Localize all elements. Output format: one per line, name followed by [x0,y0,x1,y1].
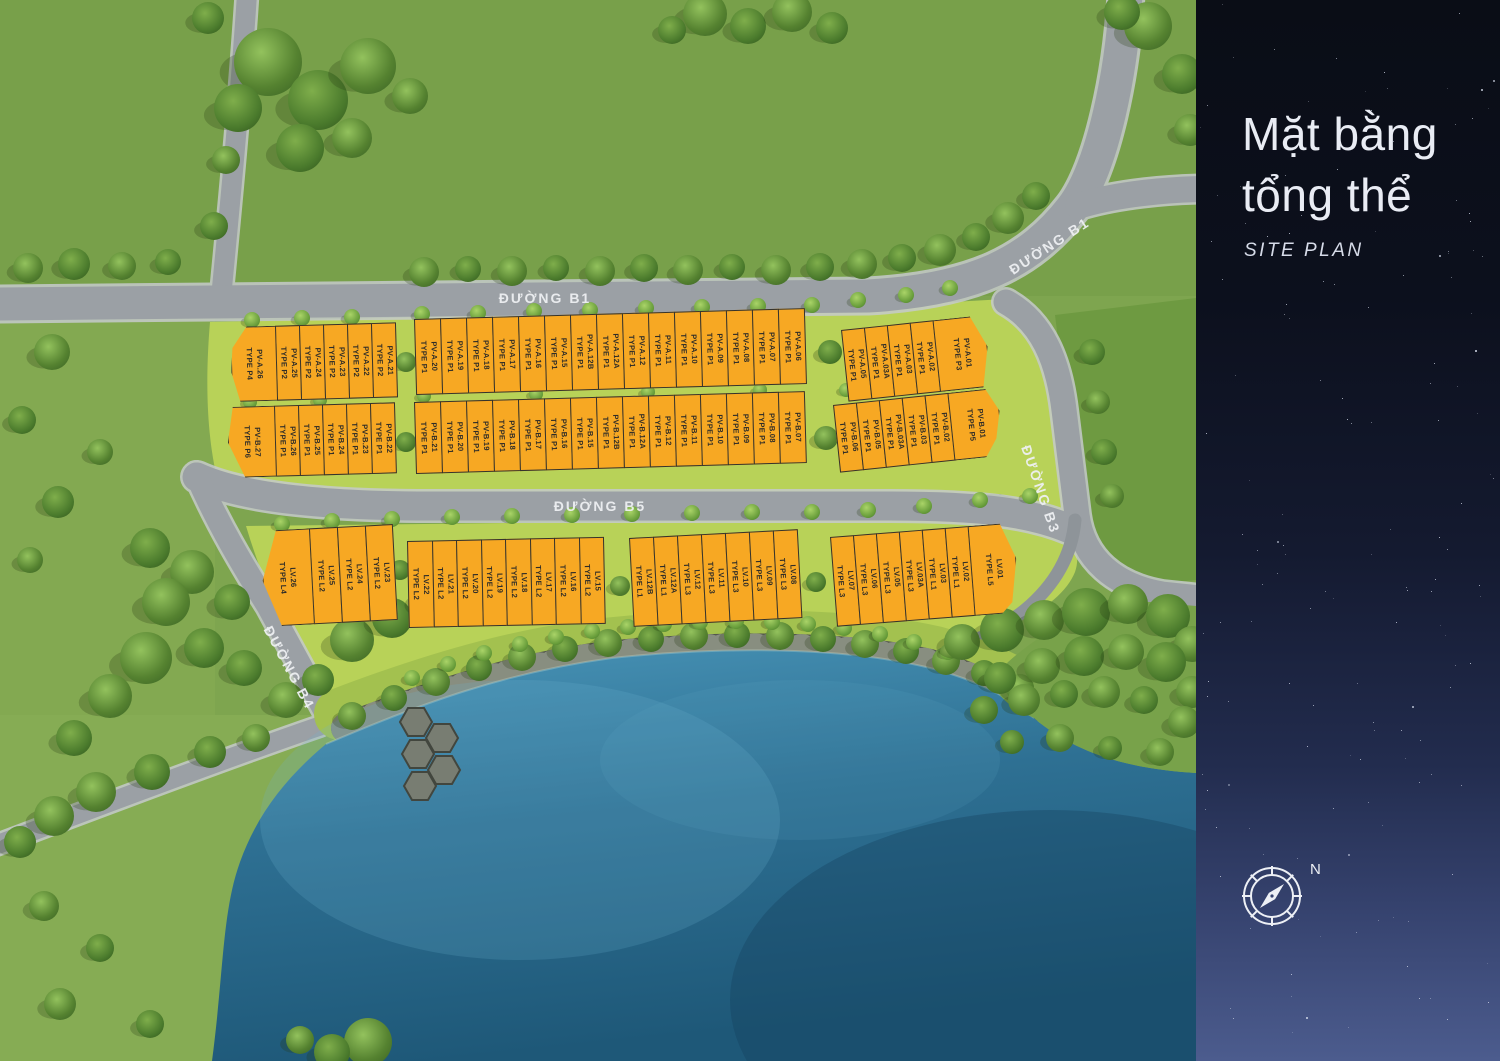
lot-PV-B.23[interactable]: PV-B.23TYPE P1 [346,403,373,475]
star-dot [1477,413,1478,414]
lot-PV-B.22[interactable]: PV-B.22TYPE P1 [370,402,397,474]
lot-label: PV-B.12BTYPE P1 [600,415,621,451]
star-dot [1412,706,1414,708]
star-dot [1334,284,1335,285]
star-dot [1439,537,1440,538]
star-dot [1420,740,1421,741]
star-dot [1408,921,1409,922]
lot-label: PV-B.05TYPE P1 [859,418,883,453]
star-dot [1249,828,1250,829]
star-dot [1291,974,1292,975]
star-dot [1262,584,1263,585]
star-dot [1228,784,1230,786]
star-dot [1419,998,1420,999]
star-dot [1205,809,1206,810]
star-dot [1481,89,1483,91]
star-dot [1202,774,1203,775]
star-dot [1480,596,1481,597]
star-dot [1450,687,1451,688]
lot-label: PV-B.15TYPE P1 [574,417,595,450]
star-dot [1220,876,1221,877]
lot-label: PV-A.21TYPE P2 [374,344,395,377]
lot-label: PV-A.24TYPE P2 [302,346,323,379]
star-dot [1405,758,1406,759]
lot-LV.16[interactable]: LV.16TYPE L2 [554,537,581,625]
star-dot [1207,696,1208,697]
lot-LV.22[interactable]: LV.22TYPE L2 [407,540,434,628]
star-dot [1493,80,1495,82]
star-dot [1257,550,1258,551]
star-dot [1448,253,1449,254]
lot-label: PV-B.11TYPE P1 [678,414,699,447]
lot-PV-B.12[interactable]: PV-B.12TYPE P1 [648,395,677,468]
lot-PV-A.25[interactable]: PV-A.25TYPE P2 [275,325,302,401]
star-dot [1200,127,1201,128]
star-dot [1431,591,1432,592]
star-dot [1475,350,1477,352]
lot-PV-A.23[interactable]: PV-A.23TYPE P2 [323,324,350,400]
star-dot [1325,591,1326,592]
star-dot [1401,730,1402,731]
lot-label: PV-A.25TYPE P2 [278,346,299,379]
star-dot [1451,277,1452,278]
star-dot [1208,681,1209,682]
star-dot [1220,622,1221,623]
lot-PV-B.12A[interactable]: PV-B.12ATYPE P1 [622,395,651,468]
lot-label: PV-A.06TYPE P1 [782,330,803,363]
star-dot [1479,585,1480,586]
star-dot [1368,802,1369,803]
lots-layer: PV-A.26TYPE P4PV-A.25TYPE P2PV-A.24TYPE … [0,0,1196,1061]
star-dot [1382,825,1383,826]
lot-PV-B.11[interactable]: PV-B.11TYPE P1 [674,394,703,467]
star-dot [1242,534,1243,535]
star-dot [1455,124,1456,125]
star-dot [1348,1027,1349,1028]
lot-PV-B.20[interactable]: PV-B.20TYPE P1 [440,401,469,474]
lot-PV-A.12B[interactable]: PV-A.12BTYPE P1 [570,314,599,391]
star-dot [1257,564,1258,565]
lot-label: LV.11TYPE L3 [705,561,727,594]
lot-group-pv-a-3: PV-A.05TYPE P1PV-A.03ATYPE P1PV-A.03TYPE… [841,315,992,402]
lot-label: LV.25TYPE L2 [315,559,337,592]
star-dot [1222,4,1223,5]
star-dot [1435,579,1436,580]
lot-label: LV.17TYPE L2 [533,565,554,598]
star-dot [1447,88,1448,89]
star-dot [1439,255,1441,257]
lot-LV.20[interactable]: LV.20TYPE L2 [456,539,483,627]
star-dot [1307,746,1308,747]
star-dot [1283,545,1284,546]
lot-PV-A.10[interactable]: PV-A.10TYPE P1 [674,311,703,388]
lot-label: LV.23TYPE L2 [370,556,392,589]
lot-PV-B.26[interactable]: PV-B.26TYPE P1 [274,405,301,477]
lot-label: PV-B.16TYPE P1 [548,417,569,450]
star-dot [1469,213,1470,214]
lot-label: PV-B.22TYPE P1 [373,422,394,455]
lot-label: LV.01TYPE L5 [983,552,1006,586]
lot-label: PV-A.16TYPE P1 [522,337,543,370]
lot-LV.21[interactable]: LV.21TYPE L2 [431,540,458,628]
star-dot [1357,683,1358,684]
star-dot [1387,88,1388,89]
lot-PV-B.17[interactable]: PV-B.17TYPE P1 [518,398,547,471]
lot-label: LV.08TYPE L3 [777,558,799,591]
lot-label: PV-A.07TYPE P1 [756,331,777,364]
lot-label: LV.02TYPE L1 [949,555,972,589]
lot-label: PV-A.12BTYPE P1 [574,334,595,370]
star-dot [1284,314,1285,315]
sidebar: Mặt bằng tổng thể SITE PLAN N [1196,0,1500,1061]
compass-icon: N [1224,842,1340,946]
lot-PV-B.10[interactable]: PV-B.10TYPE P1 [700,393,729,466]
lot-PV-A.12[interactable]: PV-A.12TYPE P1 [622,312,651,389]
lot-label: LV.07TYPE L3 [834,564,857,598]
star-dot [1323,281,1324,282]
star-dot [1360,759,1361,760]
lot-label: PV-B.23TYPE P1 [349,422,370,455]
star-dot [1457,386,1458,387]
lot-PV-B.12B[interactable]: PV-B.12BTYPE P1 [596,396,625,469]
lot-label: LV.20TYPE L2 [459,567,480,600]
lot-PV-A.12A[interactable]: PV-A.12ATYPE P1 [596,313,625,390]
star-dot [1289,233,1290,234]
lot-label: PV-A.15TYPE P1 [548,336,569,369]
star-dot [1274,49,1275,50]
lot-PV-A.24[interactable]: PV-A.24TYPE P2 [299,324,326,400]
lot-PV-A.11[interactable]: PV-A.11TYPE P1 [648,312,677,389]
lot-label: PV-B.21TYPE P1 [418,421,439,454]
lot-label: PV-A.18TYPE P1 [470,339,491,372]
lot-PV-B.25[interactable]: PV-B.25TYPE P1 [298,404,325,476]
star-dot [1459,13,1460,14]
lot-LV.23[interactable]: LV.23TYPE L2 [365,524,398,621]
star-dot [1438,420,1439,421]
lot-PV-B.15[interactable]: PV-B.15TYPE P1 [570,397,599,470]
star-dot [1452,874,1453,875]
lot-label: PV-A.12ATYPE P1 [600,334,621,370]
star-dot [1431,774,1432,775]
star-dot [1216,827,1217,828]
lot-label: PV-B.09TYPE P1 [730,412,751,445]
lot-label: LV.26TYPE L4 [276,561,298,594]
lot-label: PV-B.06TYPE P1 [837,420,861,455]
compass-north-label: N [1310,861,1321,878]
star-dot [1396,622,1397,623]
lot-PV-B.16[interactable]: PV-B.16TYPE P1 [544,398,573,471]
lot-LV.01[interactable]: LV.01TYPE L5 [968,523,1021,616]
star-dot [1351,423,1352,424]
star-dot [1406,587,1407,588]
star-dot [1308,101,1309,102]
star-dot [1368,307,1369,308]
star-dot [1267,236,1268,237]
lot-label: PV-A.11TYPE P1 [652,333,673,366]
star-dot [1471,313,1472,314]
star-dot [1350,755,1351,756]
star-dot [1333,808,1334,809]
star-dot [1348,854,1350,856]
star-dot [1407,590,1408,591]
page-title-line1: Mặt bằng [1242,104,1438,165]
star-dot [1445,635,1446,636]
star-dot [1230,1008,1231,1009]
lot-label: PV-B.10TYPE P1 [704,413,725,446]
lot-label: PV-A.01TYPE P3 [950,336,974,371]
star-dot [1277,573,1278,574]
star-dot [1430,383,1431,384]
star-dot [1310,608,1311,609]
star-dot [1356,932,1357,933]
star-dot [1291,996,1292,997]
star-dot [1448,251,1449,252]
lot-PV-A.18[interactable]: PV-A.18TYPE P1 [466,317,495,394]
lot-label: LV.19TYPE L2 [484,566,505,599]
lot-label: PV-B.02TYPE P1 [928,411,952,446]
lot-group-pv-b-1: PV-B.27TYPE P6PV-B.26TYPE P1PV-B.25TYPE … [227,402,397,478]
star-dot [1289,318,1290,319]
star-dot [1384,72,1385,73]
lot-PV-B.24[interactable]: PV-B.24TYPE P1 [322,404,349,476]
star-dot [1456,200,1457,201]
lot-group-lv-2: LV.22TYPE L2LV.21TYPE L2LV.20TYPE L2LV.1… [407,537,606,628]
lot-label: PV-B.17TYPE P1 [522,418,543,451]
star-dot [1313,705,1314,706]
page-subtitle: SITE PLAN [1244,240,1364,262]
lot-label: PV-A.12TYPE P1 [626,334,647,367]
star-dot [1430,998,1431,999]
lot-label: PV-B.01TYPE P5 [964,407,988,442]
lot-label: PV-B.12TYPE P1 [652,414,673,447]
star-dot [1249,480,1250,481]
lot-label: PV-A.03TYPE P1 [891,342,915,377]
lot-PV-B.18[interactable]: PV-B.18TYPE P1 [492,399,521,472]
star-dot [1461,503,1462,504]
lot-label: PV-B.27TYPE P6 [241,425,262,458]
lot-group-pv-a-1: PV-A.26TYPE P4PV-A.25TYPE P2PV-A.24TYPE … [230,322,398,402]
star-dot [1277,541,1279,543]
site-plan-page: ĐƯỜNG B1 ĐƯỜNG B1 ĐƯỜNG B3 ĐƯỜNG B4 ĐƯỜN… [0,0,1500,1061]
lot-label: LV.24TYPE L2 [343,558,365,591]
lot-label: LV.03TYPE L1 [926,557,949,591]
lot-PV-B.01[interactable]: PV-B.01TYPE P5 [947,388,1004,461]
star-dot [1393,917,1394,918]
star-dot [1487,963,1488,964]
star-dot [1461,785,1462,786]
star-dot [1203,633,1204,634]
lot-label: PV-A.10TYPE P1 [678,333,699,366]
lot-label: PV-A.05TYPE P1 [845,347,869,382]
star-dot [1211,241,1212,242]
star-dot [1374,730,1375,731]
lot-label: PV-B.20TYPE P1 [444,420,465,453]
star-dot [1207,105,1208,106]
lot-PV-B.21[interactable]: PV-B.21TYPE P1 [414,401,443,474]
lot-PV-B.09[interactable]: PV-B.09TYPE P1 [726,393,755,466]
star-dot [1447,1019,1448,1020]
lot-label: PV-B.18TYPE P1 [496,419,517,452]
star-dot [1333,598,1334,599]
star-dot [1390,529,1391,530]
lot-LV.26[interactable]: LV.26TYPE L4 [260,528,315,626]
lot-LV.18[interactable]: LV.18TYPE L2 [505,538,532,626]
lot-PV-A.22[interactable]: PV-A.22TYPE P2 [347,323,374,399]
page-title-line2: tổng thể [1242,165,1438,226]
star-dot [1373,722,1374,723]
star-dot [1240,186,1241,187]
star-dot [1470,663,1471,664]
lot-PV-A.06[interactable]: PV-A.06TYPE P1 [778,308,807,385]
star-dot [1488,1002,1489,1003]
lot-PV-A.01[interactable]: PV-A.01TYPE P3 [932,315,991,392]
lot-label: LV.06TYPE L3 [857,562,880,596]
lot-label: LV.15TYPE L2 [582,564,603,597]
star-dot [1371,554,1372,555]
star-dot [1490,474,1491,475]
star-dot [1403,275,1404,276]
star-dot [1286,304,1287,305]
star-dot [1292,1032,1293,1033]
star-dot [1378,920,1379,921]
lot-label: PV-A.02TYPE P1 [913,340,937,375]
lot-label: LV.09TYPE L3 [753,559,775,592]
star-dot [1407,966,1408,967]
star-dot [1285,554,1286,555]
star-dot [1233,1018,1234,1019]
star-dot [1207,790,1208,791]
page-title: Mặt bằng tổng thể [1242,104,1438,226]
star-dot [1336,58,1337,59]
lot-PV-A.20[interactable]: PV-A.20TYPE P1 [414,318,443,395]
map-area: ĐƯỜNG B1 ĐƯỜNG B1 ĐƯỜNG B3 ĐƯỜNG B4 ĐƯỜN… [0,0,1196,1061]
lot-PV-A.21[interactable]: PV-A.21TYPE P2 [371,322,398,398]
lot-PV-B.08[interactable]: PV-B.08TYPE P1 [752,392,781,465]
lot-PV-A.17[interactable]: PV-A.17TYPE P1 [492,316,521,393]
lot-label: LV.12ATYPE L1 [657,564,679,597]
lot-LV.15[interactable]: LV.15TYPE L2 [578,537,605,625]
lot-PV-B.19[interactable]: PV-B.19TYPE P1 [466,400,495,473]
lot-label: PV-A.22TYPE P2 [350,344,371,377]
lot-group-lv-3: LV.12BTYPE L1LV.12ATYPE L1LV.12TYPE L3LV… [629,529,802,627]
lot-label: PV-B.03ATYPE P1 [882,414,906,451]
star-dot [1282,514,1283,515]
lot-label: PV-A.17TYPE P1 [496,338,517,371]
lot-label: PV-A.26TYPE P4 [243,347,264,380]
star-dot [1365,91,1366,92]
lot-label: PV-A.09TYPE P1 [704,332,725,365]
star-dot [1251,621,1252,622]
lot-LV.19[interactable]: LV.19TYPE L2 [480,539,507,627]
star-dot [1472,118,1473,119]
lot-label: PV-B.03TYPE P1 [905,413,929,448]
star-dot [1306,1017,1308,1019]
lot-LV.08[interactable]: LV.08TYPE L3 [773,529,803,619]
lot-label: PV-A.20TYPE P1 [418,340,439,373]
lot-PV-A.08[interactable]: PV-A.08TYPE P1 [726,310,755,387]
lot-group-lv-1: LV.26TYPE L4LV.25TYPE L2LV.24TYPE L2LV.2… [260,524,398,627]
star-dot [1228,701,1229,702]
lot-label: PV-B.08TYPE P1 [756,412,777,445]
star-dot [1371,422,1372,423]
lot-PV-A.09[interactable]: PV-A.09TYPE P1 [700,310,729,387]
lot-label: LV.05TYPE L3 [880,560,903,594]
lot-LV.17[interactable]: LV.17TYPE L2 [529,538,556,626]
lot-PV-A.07[interactable]: PV-A.07TYPE P1 [752,309,781,386]
star-dot [1473,250,1474,251]
star-dot [1233,57,1234,58]
lot-label: PV-B.12ATYPE P1 [626,414,647,450]
star-dot [1217,195,1218,196]
lot-label: PV-B.26TYPE P1 [277,424,298,457]
lot-PV-A.15[interactable]: PV-A.15TYPE P1 [544,315,573,392]
star-dot [1493,478,1494,479]
lot-label: LV.18TYPE L2 [508,566,529,599]
star-dot [1222,279,1223,280]
lot-label: PV-B.07TYPE P1 [782,411,803,444]
star-dot [1440,625,1441,626]
star-dot [1347,419,1348,420]
lot-label: LV.03ATYPE L3 [903,559,926,593]
star-dot [1419,782,1420,783]
lot-group-pv-a-2: PV-A.20TYPE P1PV-A.19TYPE P1PV-A.18TYPE … [414,308,807,395]
lot-label: PV-A.23TYPE P2 [326,345,347,378]
star-dot [1434,363,1435,364]
lot-label: PV-A.03ATYPE P1 [868,343,892,380]
star-dot [1235,375,1236,376]
lot-label: LV.16TYPE L2 [557,565,578,598]
star-dot [1447,549,1448,550]
lot-PV-A.26[interactable]: PV-A.26TYPE P4 [230,326,278,402]
star-dot [1482,256,1483,257]
star-dot [1342,398,1343,399]
lot-label: LV.21TYPE L2 [435,567,456,600]
lot-group-pv-b-2: PV-B.21TYPE P1PV-B.20TYPE P1PV-B.19TYPE … [414,391,807,474]
star-dot [1488,108,1489,109]
star-dot [1455,665,1456,666]
lot-PV-A.19[interactable]: PV-A.19TYPE P1 [440,318,469,395]
star-dot [1320,380,1321,381]
lot-label: LV.22TYPE L2 [410,568,431,601]
star-dot [1470,221,1471,222]
lot-label: PV-A.08TYPE P1 [730,331,751,364]
lot-label: LV.12BTYPE L1 [633,565,655,598]
lot-PV-B.27[interactable]: PV-B.27TYPE P6 [227,406,277,478]
lot-label: PV-B.24TYPE P1 [325,423,346,456]
lot-PV-A.16[interactable]: PV-A.16TYPE P1 [518,315,547,392]
lot-label: LV.10TYPE L3 [729,560,751,593]
lot-PV-B.07[interactable]: PV-B.07TYPE P1 [778,391,807,464]
lot-label: PV-B.25TYPE P1 [301,424,322,457]
lot-group-lv-4: LV.07TYPE L3LV.06TYPE L3LV.05TYPE L3LV.0… [830,523,1020,627]
lot-label: LV.12TYPE L3 [681,563,703,596]
lot-label: PV-B.19TYPE P1 [470,420,491,453]
star-dot [1206,433,1207,434]
star-dot [1375,231,1376,232]
lot-label: PV-A.19TYPE P1 [444,339,465,372]
star-dot [1289,683,1290,684]
